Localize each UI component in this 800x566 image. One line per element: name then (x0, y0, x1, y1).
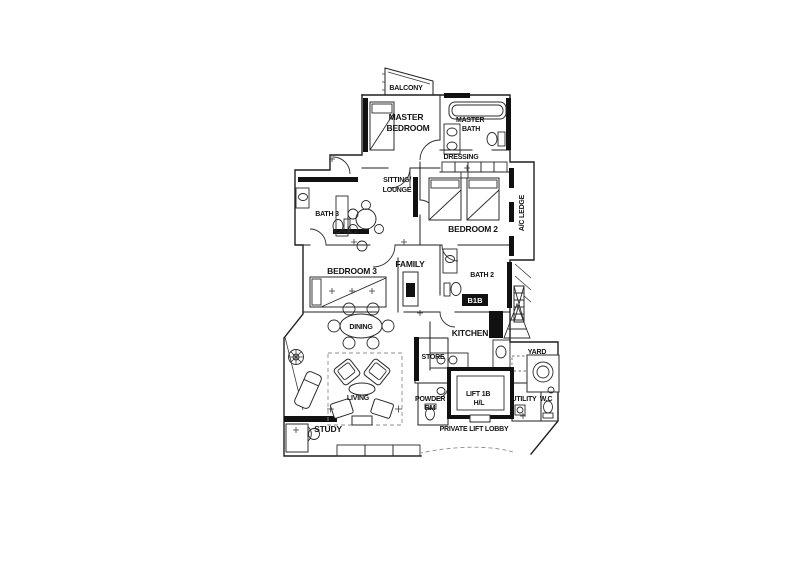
powder-room: POWDER RM (415, 388, 447, 421)
room-label-dressing: DRESSING (444, 154, 480, 161)
bed-icon (429, 178, 461, 220)
floor-plan-drawing: BALCONY (0, 0, 800, 566)
master-bedroom: MASTER BEDROOM (370, 102, 430, 150)
room-label-master-bath: MASTER BATH (456, 117, 486, 133)
kitchen-sink-icon (496, 346, 506, 358)
bedroom3: BEDROOM 3 (310, 266, 386, 307)
washing-machine-icon (527, 355, 559, 392)
living: LIVING (327, 353, 402, 425)
planter-icons (337, 445, 420, 456)
private-lift-lobby: PRIVATE LIFT LOBBY (440, 426, 509, 433)
study: STUDY (286, 424, 342, 452)
table-icon (356, 209, 376, 229)
db-badge-label: B1B (467, 296, 483, 305)
family: FAMILY (395, 259, 425, 306)
room-label-living: LIVING (347, 395, 370, 402)
master-bath: MASTER BATH (444, 102, 506, 154)
room-label-dining: DINING (349, 324, 373, 331)
fridge-icon (489, 311, 503, 338)
ac-ledge: A/C LEDGE (519, 194, 526, 231)
room-label-balcony: BALCONY (389, 85, 423, 92)
armchair-icon (363, 358, 391, 386)
sitting-lounge: SITTING/ LOUNGE (336, 177, 413, 251)
bed-icon (467, 178, 499, 220)
utility: UTILITY (511, 396, 537, 415)
hob-icon (449, 356, 457, 364)
chair-icon (348, 209, 358, 219)
bath2: BATH 2 B1B (443, 249, 494, 306)
wardrobe-icon (442, 162, 507, 172)
sink-icon (447, 142, 457, 150)
balcony: BALCONY (382, 68, 433, 95)
room-label-yard: YARD (528, 349, 547, 356)
bath3: BATH 3 (296, 188, 350, 233)
store: STORE (422, 354, 446, 361)
dining: DINING (328, 303, 394, 349)
sink-icon (299, 194, 308, 201)
sofa-icon (370, 398, 394, 418)
room-label-bedroom3: BEDROOM 3 (327, 266, 377, 276)
dressing: DRESSING (442, 154, 507, 172)
room-label-private-lift-lobby: PRIVATE LIFT LOBBY (440, 426, 509, 433)
sink-icon (437, 388, 445, 395)
room-label-bath2: BATH 2 (470, 272, 494, 279)
room-label-ac-ledge: A/C LEDGE (519, 194, 526, 231)
room-label-utility: UTILITY (511, 396, 537, 403)
coffee-table-icon (349, 383, 375, 395)
room-label-bath3: BATH 3 (315, 211, 339, 218)
plant-icon (289, 350, 304, 365)
armchair-icon (333, 358, 361, 386)
room-label-sitting-lounge: SITTING/ LOUNGE (383, 177, 413, 194)
room-label-store: STORE (422, 354, 446, 361)
toilet-icon (451, 283, 461, 296)
room-label-family: FAMILY (395, 259, 425, 269)
desk-icon (286, 424, 308, 452)
room-label-study: STUDY (314, 424, 342, 434)
lift: LIFT 1B H/L (449, 369, 512, 422)
floor-plan-page: BALCONY (0, 0, 800, 566)
room-label-bedroom2: BEDROOM 2 (448, 224, 498, 234)
toilet-icon (487, 133, 497, 146)
bedroom2: BEDROOM 2 (429, 172, 499, 234)
room-label-master-bedroom: MASTER BEDROOM (387, 112, 430, 133)
room-label-wc: W.C (540, 396, 553, 403)
sink-icon (447, 128, 457, 136)
room-label-kitchen: KITCHEN (452, 328, 488, 338)
yard: YARD (512, 349, 559, 392)
